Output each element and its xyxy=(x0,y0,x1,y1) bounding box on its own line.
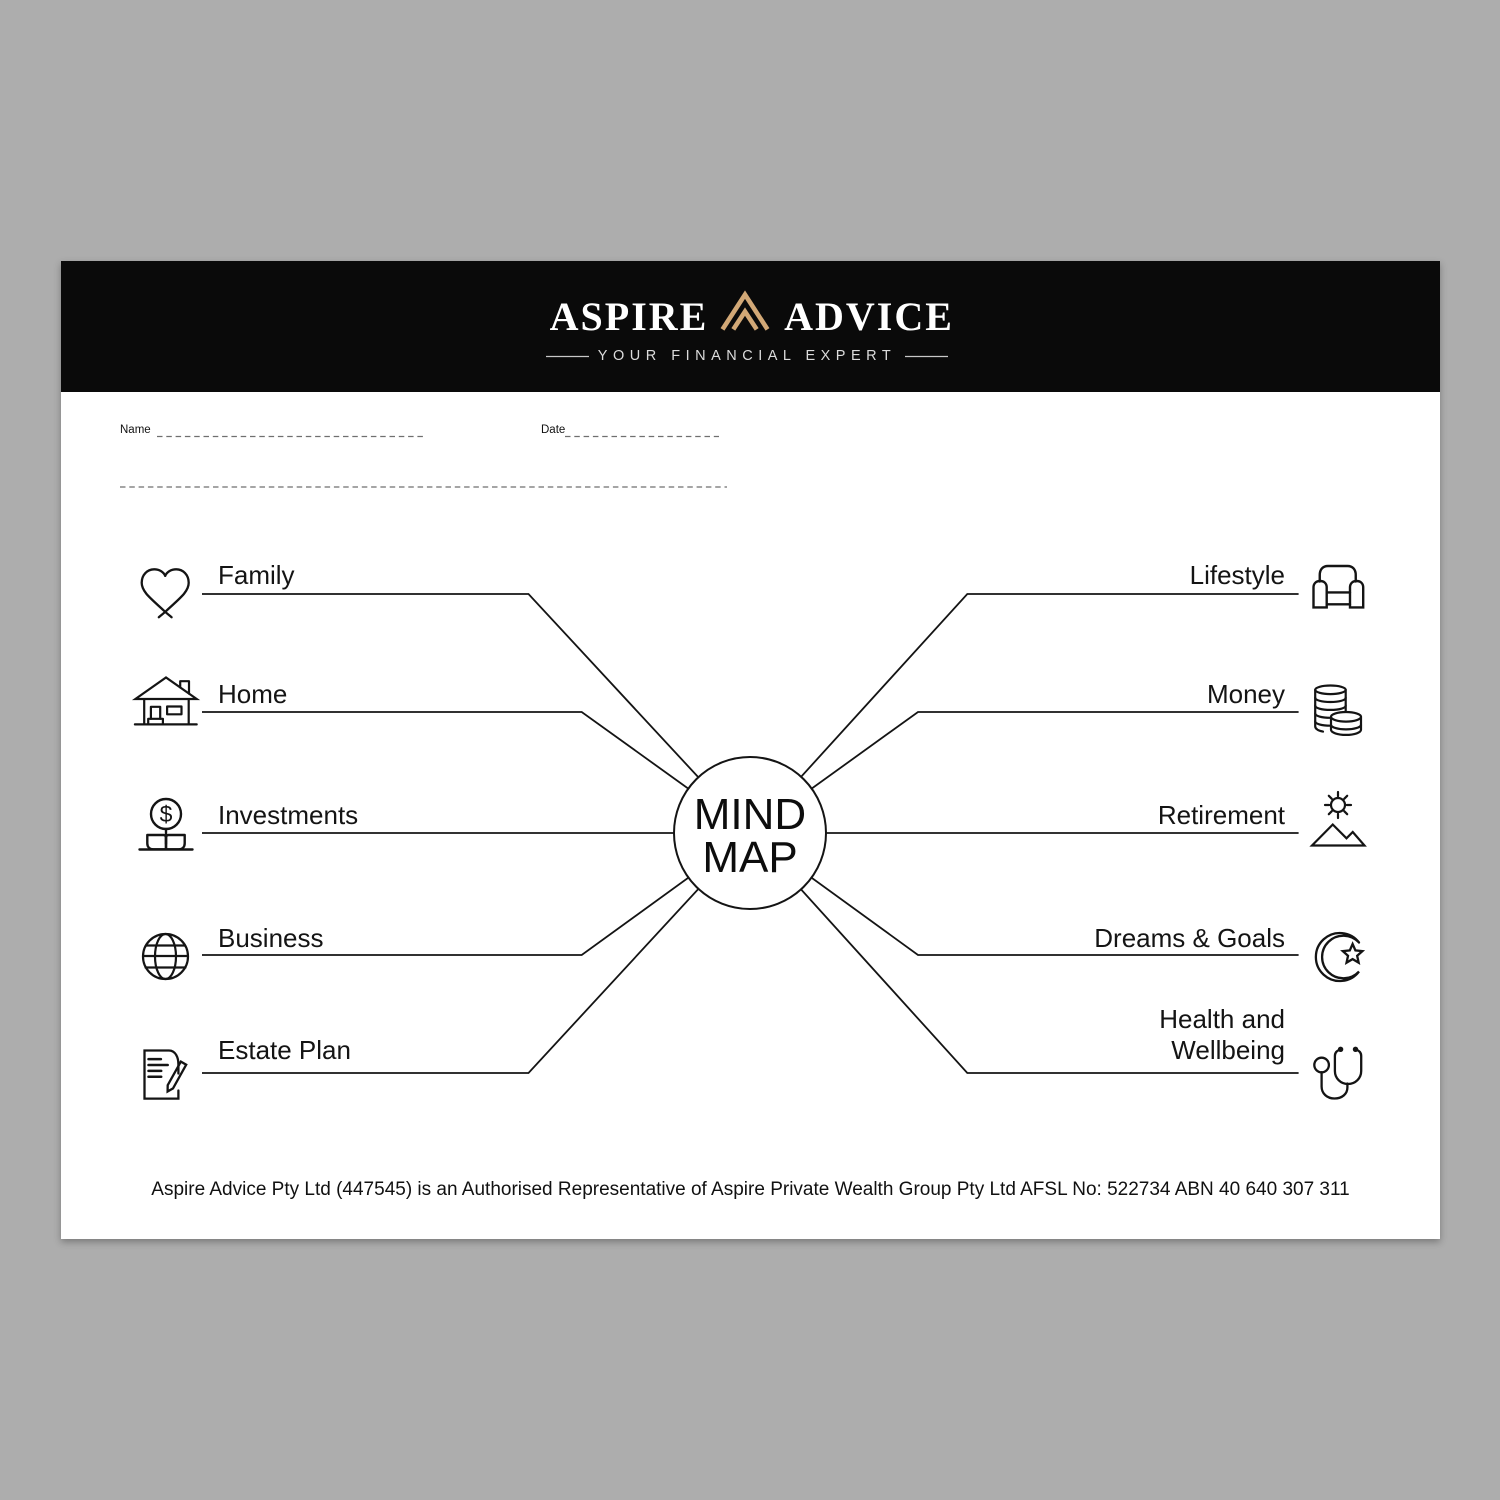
svg-text:MAP: MAP xyxy=(702,833,797,882)
svg-text:Business: Business xyxy=(218,923,324,953)
svg-text:Retirement: Retirement xyxy=(1158,800,1286,830)
svg-text:$: $ xyxy=(160,801,173,827)
svg-text:Health and: Health and xyxy=(1159,1004,1285,1034)
svg-text:Investments: Investments xyxy=(218,800,358,830)
svg-text:Wellbeing: Wellbeing xyxy=(1171,1035,1285,1065)
svg-text:MIND: MIND xyxy=(694,790,806,839)
svg-text:Family: Family xyxy=(218,560,295,590)
svg-text:Lifestyle: Lifestyle xyxy=(1190,560,1285,590)
svg-text:Money: Money xyxy=(1207,679,1285,709)
svg-text:Dreams & Goals: Dreams & Goals xyxy=(1094,923,1285,953)
svg-text:Estate Plan: Estate Plan xyxy=(218,1035,351,1065)
svg-text:Home: Home xyxy=(218,679,287,709)
